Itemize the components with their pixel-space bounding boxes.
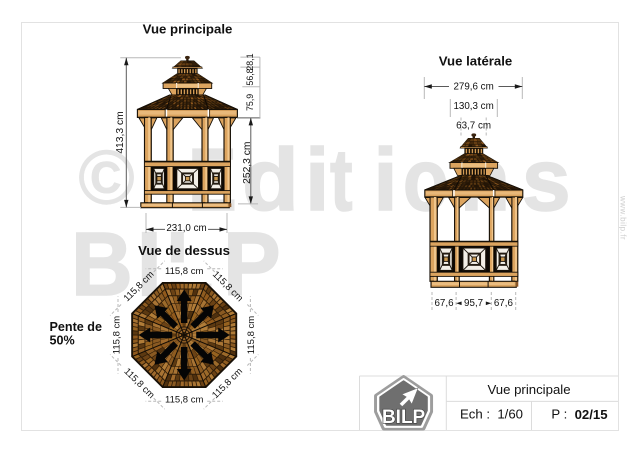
svg-text:Pente de: Pente de xyxy=(50,320,103,334)
svg-text:95,7: 95,7 xyxy=(464,298,483,309)
svg-text:50%: 50% xyxy=(50,334,75,348)
svg-text:67,6: 67,6 xyxy=(494,298,514,309)
svg-text:Vue latérale: Vue latérale xyxy=(439,54,513,69)
svg-text:56,8: 56,8 xyxy=(245,68,255,85)
svg-text:63,7 cm: 63,7 cm xyxy=(456,121,491,132)
svg-text:413,3 cm: 413,3 cm xyxy=(115,111,126,153)
svg-text:115,8 cm: 115,8 cm xyxy=(165,266,203,277)
svg-text:BILP: BILP xyxy=(382,407,426,428)
svg-text:67,6: 67,6 xyxy=(434,298,454,309)
svg-text:115,8 cm: 115,8 cm xyxy=(246,316,257,354)
svg-text:75,9: 75,9 xyxy=(245,94,255,111)
svg-text:Ech : 1/60: Ech : 1/60 xyxy=(460,406,523,421)
svg-text:Vue de dessus: Vue de dessus xyxy=(138,243,230,258)
svg-text:Vue principale: Vue principale xyxy=(143,22,233,37)
svg-text:252,3 cm: 252,3 cm xyxy=(242,142,253,184)
svg-text:28,1: 28,1 xyxy=(245,53,255,70)
svg-text:130,3 cm: 130,3 cm xyxy=(453,101,493,112)
svg-text:P : 02/15: P : 02/15 xyxy=(551,406,607,421)
svg-text:115,8 cm: 115,8 cm xyxy=(165,395,203,406)
svg-text:279,6 cm: 279,6 cm xyxy=(453,81,493,92)
svg-text:Vue principale: Vue principale xyxy=(487,382,570,397)
svg-text:115,8 cm: 115,8 cm xyxy=(111,316,122,354)
svg-text:231,0 cm: 231,0 cm xyxy=(166,223,206,234)
